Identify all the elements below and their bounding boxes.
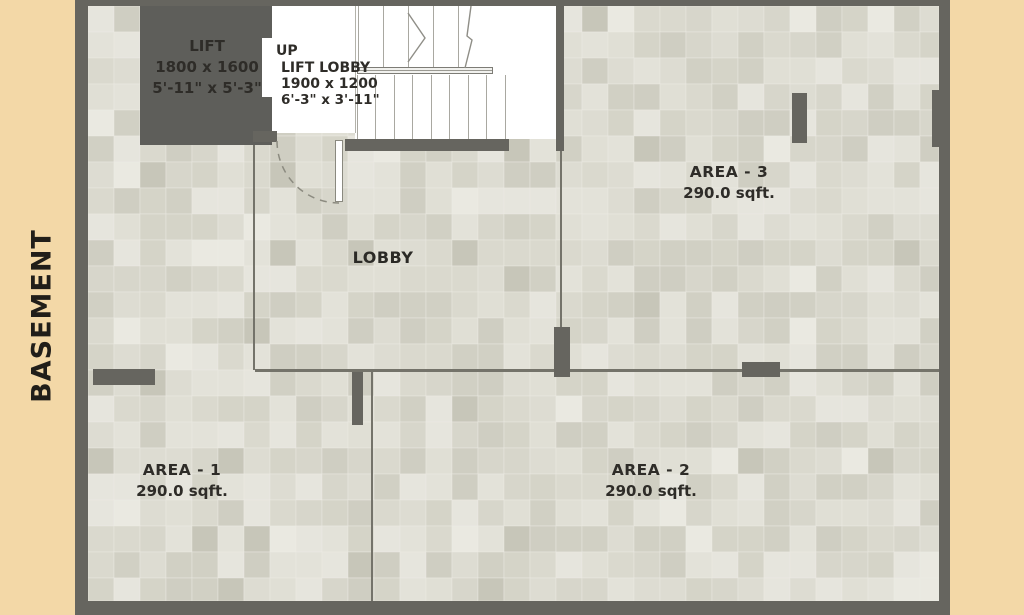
stair-marks	[355, 6, 556, 139]
lift-name: LIFT	[152, 36, 262, 57]
floorplan: LIFT 1800 x 1600 5'-11" x 5'-3" UP LIFT …	[75, 0, 950, 615]
lift-lobby-dim-mm: 1900 x 1200	[281, 76, 380, 92]
wall-left	[75, 0, 88, 615]
stairs-up-label: UP	[276, 43, 298, 59]
lobby-label: LOBBY	[353, 248, 414, 267]
area2-label-block: AREA - 2 290.0 sqft.	[605, 460, 697, 502]
pillar-left-stub	[93, 369, 155, 385]
wall-liftlobby-stub	[253, 131, 277, 142]
lift-label-block: LIFT 1800 x 1600 5'-11" x 5'-3"	[152, 36, 262, 99]
floorplan-canvas: BASEMENT	[0, 0, 1024, 615]
wall-stairs-right	[556, 0, 564, 151]
area2-size: 290.0 sqft.	[605, 481, 697, 502]
wall-top	[88, 0, 939, 6]
pillar-area3	[792, 93, 807, 143]
stairs	[355, 6, 556, 139]
lift-dim-ft: 5'-11" x 5'-3"	[152, 78, 262, 99]
wall-right	[939, 0, 950, 615]
lift-lobby-name: LIFT LOBBY	[281, 60, 380, 76]
area1-label-block: AREA - 1 290.0 sqft.	[136, 460, 228, 502]
door-leaf	[335, 140, 343, 202]
lift-lobby-label-block: LIFT LOBBY 1900 x 1200 6'-3" x 3'-11"	[281, 60, 380, 108]
lift-door-opening	[262, 38, 272, 97]
wall-lobby-area3	[560, 151, 562, 329]
pillar-lobby-corner	[554, 327, 570, 377]
pillar-area2-area3	[742, 362, 780, 377]
up-arrow-icon	[408, 13, 425, 62]
area3-label-block: AREA - 3 290.0 sqft.	[683, 162, 775, 204]
lift-lobby-dim-ft: 6'-3" x 3'-11"	[281, 92, 380, 108]
area3-name: AREA - 3	[683, 162, 775, 183]
pier-right-wall	[932, 90, 939, 147]
area1-size: 290.0 sqft.	[136, 481, 228, 502]
stair-break-line	[465, 6, 472, 68]
floor-title: BASEMENT	[27, 229, 58, 403]
area1-name: AREA - 1	[136, 460, 228, 481]
wall-bottom	[75, 601, 950, 615]
area3-size: 290.0 sqft.	[683, 183, 775, 204]
area2-name: AREA - 2	[605, 460, 697, 481]
wall-under-stairs	[345, 139, 509, 151]
wall-area1-area2	[371, 372, 373, 602]
pillar-area1-area2	[352, 372, 363, 425]
wall-lift-to-lobby	[253, 145, 255, 370]
lift-dim-mm: 1800 x 1600	[152, 57, 262, 78]
